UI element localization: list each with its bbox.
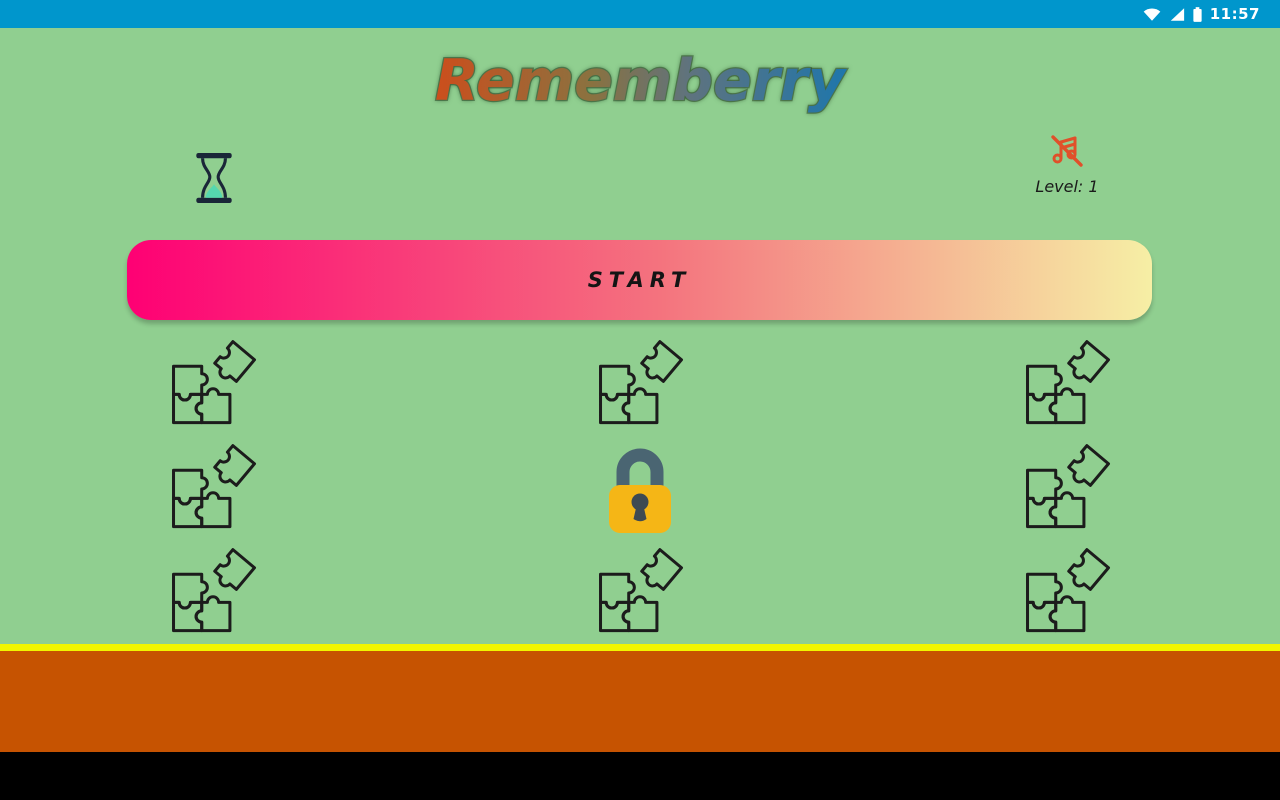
music-off-icon[interactable] <box>1046 130 1088 172</box>
hourglass-icon <box>194 152 234 204</box>
level-button[interactable] <box>593 338 687 432</box>
puzzle-icon <box>166 546 260 640</box>
rememberry-app-screen: 11:57 Rememberry Level: 1 <box>0 0 1280 800</box>
level-button[interactable] <box>1020 338 1114 432</box>
level-button[interactable] <box>166 442 260 536</box>
orange-ground-area <box>0 651 1280 752</box>
status-bar: 11:57 <box>0 0 1280 28</box>
app-title: Rememberry <box>400 28 880 140</box>
level-button[interactable] <box>1020 442 1114 536</box>
start-button-label: START <box>588 268 692 292</box>
puzzle-icon <box>593 546 687 640</box>
puzzle-icon <box>1020 442 1114 536</box>
yellow-ground-stripe <box>0 644 1280 651</box>
cellular-signal-icon <box>1169 7 1185 22</box>
puzzle-icon <box>1020 546 1114 640</box>
lock-icon <box>590 439 690 539</box>
start-button[interactable]: START <box>127 240 1152 320</box>
android-nav-bar <box>0 752 1280 800</box>
svg-text:Rememberry: Rememberry <box>435 48 848 114</box>
status-bar-clock: 11:57 <box>1210 5 1260 23</box>
locked-level-button[interactable] <box>590 439 690 539</box>
level-button[interactable] <box>166 338 260 432</box>
main-menu: Rememberry Level: 1 START <box>0 28 1280 644</box>
level-button[interactable] <box>1020 546 1114 640</box>
puzzle-icon <box>166 442 260 536</box>
puzzle-icon <box>166 338 260 432</box>
puzzle-icon <box>593 338 687 432</box>
level-indicator: Level: 1 <box>1035 177 1098 196</box>
level-button[interactable] <box>593 546 687 640</box>
level-button[interactable] <box>166 546 260 640</box>
battery-icon <box>1192 6 1203 23</box>
sound-status: Level: 1 <box>1022 130 1112 196</box>
wifi-icon <box>1142 7 1162 22</box>
level-grid <box>0 333 1280 645</box>
puzzle-icon <box>1020 338 1114 432</box>
